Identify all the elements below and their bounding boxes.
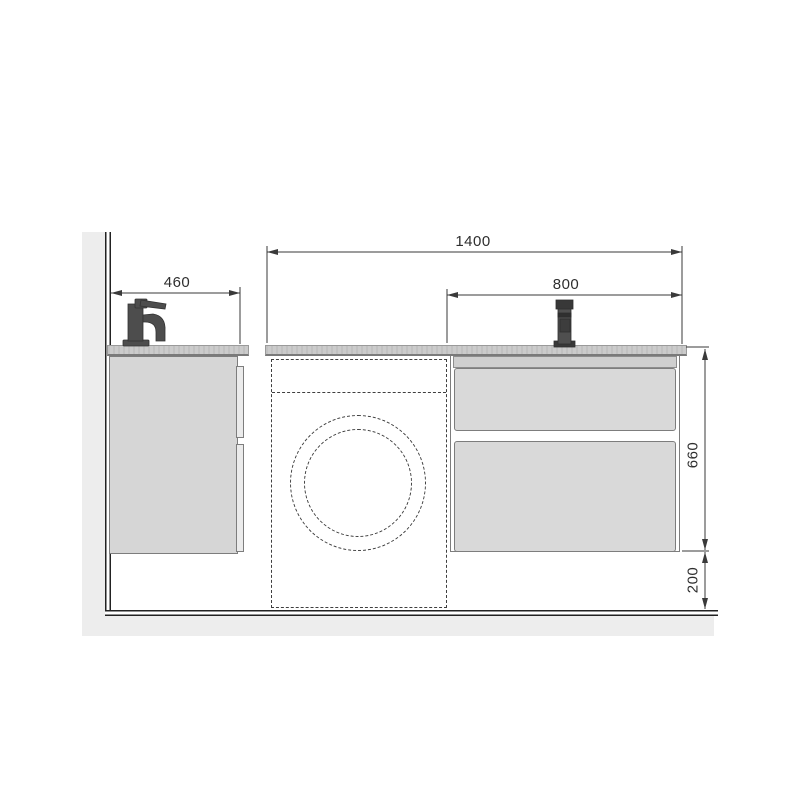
dim-label-right-section-width: 800 [553,276,580,293]
right-vanity-cabinet [450,356,680,552]
technical-drawing-canvas: 1400 800 460 660 200 [0,0,800,800]
main-countertop [265,345,687,356]
washer-door-inner-circle [304,429,412,537]
right-vanity-top-rail [453,356,677,368]
left-vanity-drawer-edge-bottom [236,444,244,552]
washing-machine-outline [271,359,447,608]
wall-band [82,232,106,636]
dim-label-floor-clearance: 200 [685,567,702,594]
dim-label-left-vanity-width: 460 [164,274,191,291]
floor-line [105,610,718,616]
dimension-1400 [267,246,682,344]
dim-label-cabinet-height: 660 [685,442,702,469]
washing-machine-control-panel-line [272,392,446,393]
left-faucet-icon [123,299,166,346]
dimension-800 [447,289,682,343]
right-vanity-drawer-top [454,368,676,431]
floor-band [82,616,714,636]
left-vanity-countertop [107,345,249,356]
right-faucet-icon [554,300,575,347]
right-vanity-drawer-bottom [454,441,676,552]
dim-label-total-width: 1400 [455,233,490,250]
dimension-200 [702,552,708,609]
dimension-460 [111,287,240,344]
left-vanity-cabinet [109,356,238,554]
left-vanity-drawer-edge-top [236,366,244,438]
